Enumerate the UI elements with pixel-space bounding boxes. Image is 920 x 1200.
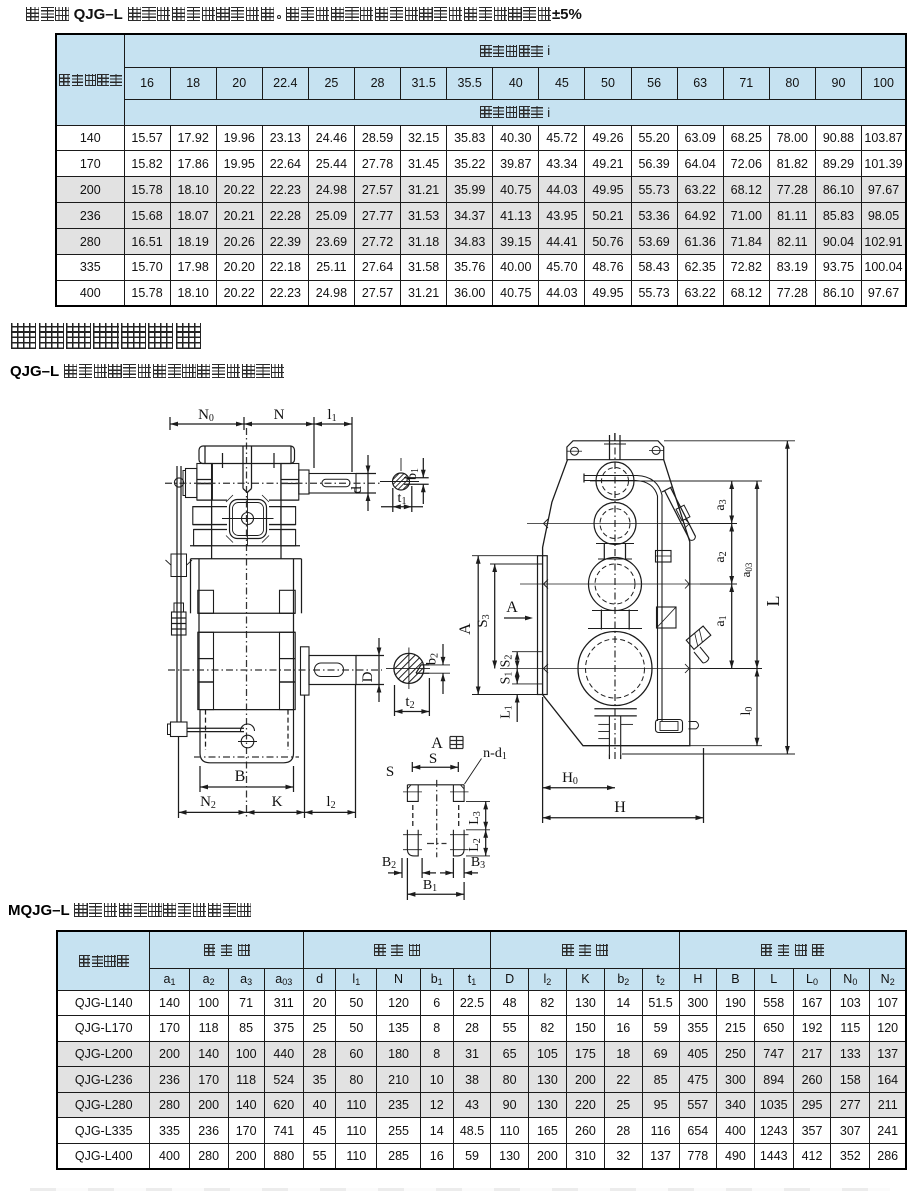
svg-text:b1: b1: [405, 468, 421, 480]
svg-text:n-d1: n-d1: [483, 746, 507, 762]
svg-text:S1: S1: [499, 672, 515, 685]
svg-text:H: H: [614, 799, 626, 816]
svg-text:L3: L3: [467, 811, 483, 825]
svg-text:S: S: [386, 764, 394, 780]
svg-text:S2: S2: [499, 655, 515, 668]
svg-text:L1: L1: [499, 705, 515, 719]
svg-text:B2: B2: [382, 855, 396, 871]
svg-text:S3: S3: [475, 614, 492, 627]
svg-text:a2: a2: [713, 551, 729, 562]
svg-text:K: K: [272, 794, 283, 810]
svg-text:l1: l1: [327, 407, 336, 424]
svg-text:N: N: [274, 407, 285, 423]
svg-text:L: L: [763, 596, 783, 607]
svg-text:A: A: [457, 623, 474, 635]
svg-text:l2: l2: [326, 794, 335, 811]
svg-text:a03: a03: [738, 562, 754, 577]
svg-text:D: D: [360, 671, 376, 682]
svg-text:N2: N2: [200, 794, 216, 811]
svg-text:d: d: [349, 486, 365, 494]
svg-text:A: A: [431, 735, 443, 752]
svg-text:a1: a1: [713, 615, 729, 626]
svg-text:t1: t1: [398, 491, 407, 507]
svg-text:L2: L2: [467, 838, 483, 852]
svg-text:l0: l0: [739, 707, 755, 716]
svg-text:t2: t2: [405, 694, 414, 711]
svg-text:S: S: [429, 751, 437, 767]
svg-text:B1: B1: [423, 878, 437, 894]
svg-text:B: B: [235, 768, 246, 785]
svg-text:b2: b2: [425, 653, 441, 665]
svg-text:A: A: [506, 599, 518, 616]
svg-text:B3: B3: [471, 855, 485, 871]
svg-text:N0: N0: [198, 407, 214, 424]
svg-text:a3: a3: [713, 499, 729, 510]
svg-text:H0: H0: [562, 770, 578, 787]
